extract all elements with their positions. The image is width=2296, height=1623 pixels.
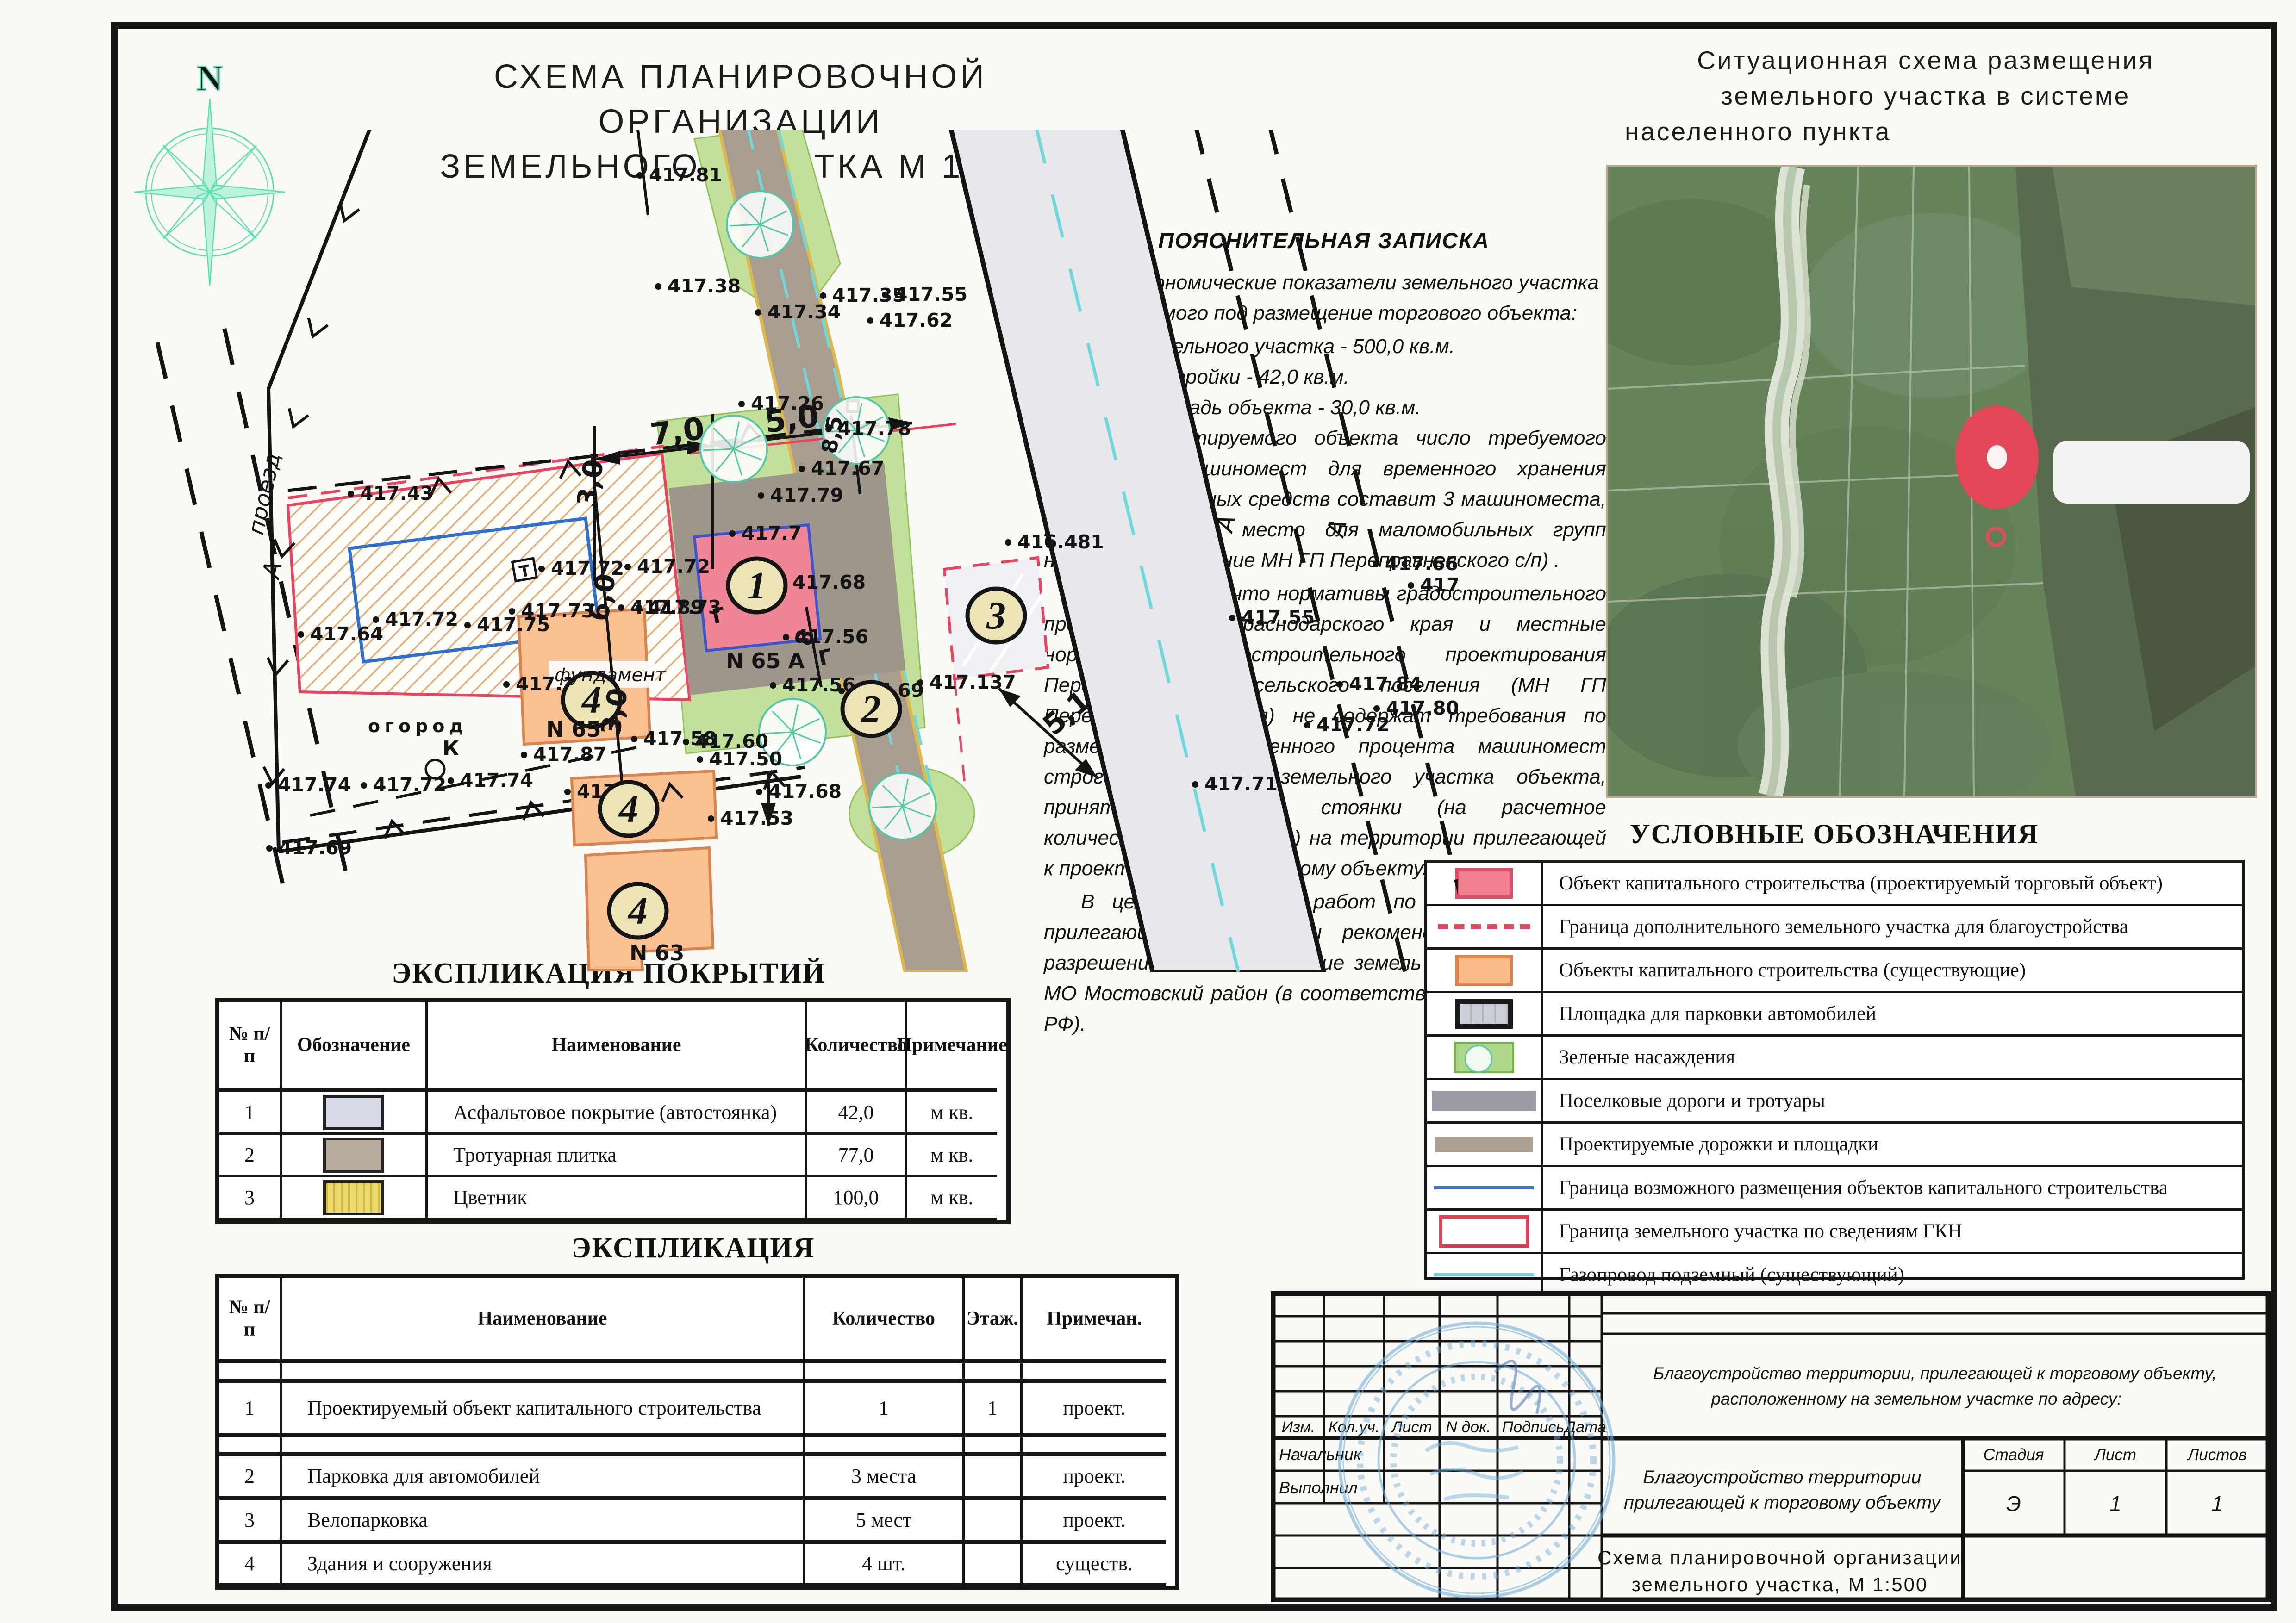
survey-tick (266, 658, 288, 676)
road-label: проезд (243, 450, 286, 537)
explication-spacer (965, 1437, 1023, 1456)
coverings-header: Наименование (428, 1002, 807, 1092)
sheet-name-line2: земельного участка, М 1:500 (1632, 1573, 1928, 1595)
elevation-label: 417.62 (880, 309, 953, 331)
elevation-dot (631, 736, 637, 742)
feature-number-2: 2 (842, 682, 900, 736)
elevation-label: 417.67 (811, 457, 884, 479)
compass-north-label: N (197, 58, 223, 98)
flower-swatch (323, 1180, 384, 1215)
coverings-row-note: м кв. (907, 1135, 997, 1177)
explication-spacer (1023, 1363, 1166, 1383)
legend-item-label: Объекты капитального строительства (суще… (1543, 959, 2026, 982)
legend: Объект капитального строительства (проек… (1424, 860, 2245, 1280)
explication-row-qty: 1 (805, 1383, 965, 1437)
feature-number-4: 4 (600, 782, 657, 836)
explication-header: Наименование (282, 1278, 805, 1363)
legend-item: Газопровод подземный (существующий) (1427, 1254, 2242, 1295)
elevation-label: 416.481 (1017, 531, 1104, 553)
elevation-label: 417.34 (767, 301, 841, 323)
elevation-label: 417.55 (1242, 606, 1315, 628)
legend-item-label: Проектируемые дорожки и площадки (1543, 1133, 1878, 1156)
elevation-dot (564, 789, 571, 795)
legend-item: Проектируемые дорожки и площадки (1427, 1124, 2242, 1167)
label: Э (2006, 1492, 2021, 1516)
red-border-rect-icon (1427, 1211, 1543, 1252)
elevation-label: 417.50 (709, 748, 782, 770)
elevation-label: 417.68 (768, 780, 842, 802)
elevation-label: 417.43 (360, 482, 433, 504)
feature-number-4: 4 (609, 884, 667, 938)
tree-icon (869, 773, 936, 839)
explication-spacer (219, 1437, 282, 1456)
elevation-dot (521, 752, 527, 758)
elevation-dot (756, 789, 762, 795)
road-letter: А (1322, 517, 1353, 540)
elevation-dot (1005, 539, 1011, 546)
elevation-dot (738, 401, 745, 407)
elevation-dot (655, 283, 661, 290)
explication-row-note: существ. (1023, 1544, 1166, 1586)
explication-row-note: проект. (1023, 1456, 1166, 1500)
legend-item: Объект капитального строительства (проек… (1427, 863, 2242, 906)
well-letter: К (443, 737, 459, 760)
explication-header: Количество (805, 1278, 965, 1363)
elevation-label: 417.69 (279, 837, 352, 859)
explication-row-qty: 5 мест (805, 1500, 965, 1544)
elevation-label: 417.55 (894, 283, 967, 305)
legend-item: Поселковые дороги и тротуары (1427, 1080, 2242, 1124)
elevation-dot (708, 815, 714, 822)
elevation-dot (464, 622, 471, 628)
legend-item-label: Граница земельного участка по сведениям … (1543, 1220, 1962, 1243)
elevation-dot (298, 631, 304, 638)
village-road (949, 130, 1324, 972)
building-label: N 65 (546, 717, 601, 742)
explication-row-name: Парковка для автомобилей (282, 1456, 805, 1500)
taupe-band-icon (1427, 1124, 1543, 1165)
legend-title: УСЛОВНЫЕ ОБОЗНАЧЕНИЯ (1423, 818, 2245, 850)
coverings-row-qty: 42,0 (807, 1092, 907, 1135)
feature-number-1: 1 (728, 559, 786, 612)
elevation-label: 417.72 (637, 555, 710, 578)
elevation-label: 417.137 (930, 671, 1016, 693)
label: Стадия (1983, 1446, 2044, 1464)
label: 3 (986, 594, 1006, 637)
coverings-row-qty: 100,0 (807, 1177, 907, 1220)
blue-line-icon (1427, 1167, 1543, 1208)
situational-title-line: населенного пункта (1592, 114, 2259, 149)
explication-row-num: 2 (219, 1456, 282, 1500)
elevation-dot (1373, 705, 1380, 712)
legend-item-label: Зеленые насаждения (1543, 1046, 1735, 1069)
legend-item-label: Газопровод подземный (существующий) (1543, 1263, 1904, 1286)
elevation-label: 417.71 (1204, 773, 1278, 795)
elevation-dot (265, 782, 272, 789)
coverings-row-num: 1 (219, 1092, 282, 1135)
elevation-dot (618, 604, 624, 611)
explication-header: Примечан. (1023, 1278, 1166, 1363)
elevation-dot (538, 566, 545, 572)
map-label-box (2053, 441, 2250, 504)
elevation-dot (448, 777, 454, 784)
survey-tick (303, 318, 328, 340)
elevation-dot (348, 491, 354, 497)
elevation-dot (770, 682, 776, 689)
site-plan: 417.81417.38417.34417.35417.55417.62417.… (116, 130, 1458, 972)
explication-spacer (965, 1363, 1023, 1383)
elevation-dot (697, 756, 703, 763)
coverings-row-swatch (282, 1135, 428, 1177)
elevation-label: 417.87 (533, 743, 606, 765)
explication-row-floor (965, 1544, 1023, 1586)
tree-icon (700, 416, 767, 482)
coverings-row-name: Цветник (428, 1177, 807, 1220)
elevation-dot (509, 608, 515, 615)
coverings-row-note: м кв. (907, 1092, 997, 1135)
label: 1 (2211, 1492, 2223, 1516)
explication-spacer (805, 1363, 965, 1383)
label: 4 (627, 889, 648, 933)
round-stamp (1324, 1317, 1629, 1613)
cyan-line-icon (1427, 1254, 1543, 1295)
legend-item: Граница земельного участка по сведениям … (1427, 1211, 2242, 1254)
elevation-dot (373, 616, 379, 623)
elevation-label: 417.78 (838, 417, 911, 440)
explication-header: № п/п (219, 1278, 282, 1363)
situational-title: Ситуационная схема размещения земельного… (1592, 43, 2259, 149)
explication-spacer (282, 1437, 805, 1456)
explication-row-note: проект. (1023, 1500, 1166, 1544)
label: 1 (2109, 1492, 2121, 1516)
coverings-header: Количество (807, 1002, 907, 1092)
situational-title-line: Ситуационная схема размещения (1592, 43, 2259, 78)
legend-item: Граница дополнительного земельного участ… (1427, 906, 2242, 950)
elevation-label: 417.79 (770, 484, 843, 506)
legend-item-label: Граница дополнительного земельного участ… (1543, 915, 2128, 938)
elevation-dot (1336, 681, 1343, 688)
explication-row-note: проект. (1023, 1383, 1166, 1437)
elevation-label: 417.67 (1420, 574, 1458, 596)
label: 2 (861, 688, 881, 731)
elevation-dot (1229, 615, 1235, 621)
address-line2: расположенному на земельном участке по а… (1711, 1389, 2122, 1408)
elevation-label: 417.80 (1386, 697, 1458, 719)
elevation-dot (503, 681, 510, 688)
sheet-name-line1: Схема планировочной организации (1597, 1547, 1962, 1568)
explication-row-name: Велопарковка (282, 1500, 805, 1544)
explication-row-floor (965, 1456, 1023, 1500)
explication-row-qty: 4 шт. (805, 1544, 965, 1586)
elevation-dot (1192, 781, 1198, 788)
explication-row-floor: 1 (965, 1383, 1023, 1437)
legend-item-label: Площадка для парковки автомобилей (1543, 1002, 1876, 1025)
situational-title-line: земельного участка в системе (1592, 78, 2259, 114)
elevation-label: 417.38 (668, 275, 741, 297)
stage-cells: СтадияЛистЛистовЭ11 (1983, 1446, 2246, 1516)
coverings-row-swatch (282, 1177, 428, 1220)
elevation-label: 417.74 (278, 774, 351, 796)
explication-row-num: 4 (219, 1544, 282, 1586)
elevation-label: 417.72 (1316, 714, 1390, 736)
label: Лист (2094, 1446, 2136, 1464)
coverings-row-qty: 77,0 (807, 1135, 907, 1177)
explication-row-num: 3 (219, 1500, 282, 1544)
elevation-label: 417.72 (385, 608, 458, 630)
drawing-sheet: N СХЕМА ПЛАНИРОВОЧНОЙ ОРГАНИЗАЦИИ ЗЕМЕЛЬ… (0, 0, 2296, 1623)
project-line1: Благоустройство территории (1643, 1467, 1921, 1487)
foundation-label: фундамент (555, 665, 667, 686)
garden-label: огород (368, 716, 468, 736)
explication-row-floor (965, 1500, 1023, 1544)
elevation-dot (729, 530, 736, 537)
elevation-dot (1304, 722, 1310, 728)
coverings-row-num: 3 (219, 1177, 282, 1220)
explication-table: № п/пНаименованиеКоличествоЭтаж.Примечан… (215, 1274, 1179, 1590)
building-label: N 65 А (726, 648, 805, 673)
elevation-dot (636, 604, 642, 611)
coverings-table: № п/пОбозначениеНаименованиеКоличествоПр… (215, 998, 1011, 1224)
elevation-label: 417.72 (373, 774, 446, 796)
legend-item: Граница возможного размещения объектов к… (1427, 1167, 2242, 1211)
road-letter: А (257, 559, 288, 582)
explication-spacer (219, 1363, 282, 1383)
explication-row-qty: 3 места (805, 1456, 965, 1500)
elevation-label: 417.84 (1349, 673, 1422, 695)
elevation-label: 417.53 (720, 807, 793, 829)
elevation-dot (1373, 561, 1379, 567)
parking-rect-icon (1427, 993, 1543, 1034)
dimension-label: 7,0 (649, 410, 706, 453)
elevation-label: 417.64 (310, 623, 383, 645)
legend-item-label: Объект капитального строительства (проек… (1543, 872, 2163, 895)
feature-number-3: 3 (967, 589, 1025, 642)
elevation-label: 417.68 (792, 571, 866, 593)
gray-band-icon (1427, 1080, 1543, 1121)
legend-rows: Объект капитального строительства (проек… (1427, 863, 2242, 1295)
address-line1: Благоустройство территории, прилегающей … (1653, 1364, 2217, 1383)
green-tree-rect-icon (1427, 1037, 1543, 1078)
dimension-label: 5,0 (763, 398, 821, 440)
elevation-dot (867, 317, 873, 324)
label: Листов (2187, 1446, 2246, 1464)
elevation-dot (636, 172, 643, 179)
coverings-header: Примечание (907, 1002, 997, 1092)
elevation-dot (758, 492, 764, 499)
elevation-dot (266, 845, 273, 852)
asphalt-swatch (323, 1095, 384, 1130)
elevation-label: 417.81 (649, 164, 722, 186)
legend-item: Зеленые насаждения (1427, 1037, 2242, 1080)
explication-spacer (282, 1363, 805, 1383)
explication-spacer (1023, 1437, 1166, 1456)
elevation-dot (799, 466, 805, 472)
survey-tick (284, 408, 308, 430)
coverings-row-name: Асфальтовое покрытие (автостоянка) (428, 1092, 807, 1135)
building-label: N 63 (630, 940, 685, 965)
elevation-label: 417.56 (782, 674, 855, 696)
coverings-header: № п/п (219, 1002, 282, 1092)
elevation-label: 417.66 (1385, 553, 1458, 575)
explication-table-title: ЭКСПЛИКАЦИЯ (215, 1232, 1171, 1265)
coverings-row-note: м кв. (907, 1177, 997, 1220)
elevation-label: 417.74 (460, 769, 533, 791)
label: Изм. (1282, 1418, 1316, 1436)
coverings-row-name: Тротуарная плитка (428, 1135, 807, 1177)
coverings-row-swatch (282, 1092, 428, 1135)
elevation-dot (1408, 582, 1414, 589)
elevation-dot (683, 739, 689, 745)
elevation-dot (783, 634, 789, 640)
elevation-dot (882, 292, 888, 298)
explication-row-num: 1 (219, 1383, 282, 1437)
legend-item-label: Граница возможного размещения объектов к… (1543, 1176, 2168, 1199)
satellite-map-image (1608, 167, 2255, 796)
explication-row-name: Проектируемый объект капитального строит… (282, 1383, 805, 1437)
legend-item-label: Поселковые дороги и тротуары (1543, 1089, 1825, 1112)
explication-spacer (805, 1437, 965, 1456)
project-line2: прилегающей к торговому объекту (1624, 1492, 1942, 1513)
elevation-label: 417.7 (742, 522, 802, 544)
tile-swatch (323, 1138, 384, 1173)
satellite-map (1606, 165, 2257, 798)
elevation-dot (755, 309, 761, 316)
legend-item: Площадка для парковки автомобилей (1427, 993, 2242, 1037)
label: 4 (618, 788, 638, 831)
legend-item: Объекты капитального строительства (суще… (1427, 950, 2242, 993)
coverings-header: Обозначение (282, 1002, 428, 1092)
elevation-dot (820, 292, 826, 299)
coverings-row-num: 2 (219, 1135, 282, 1177)
tree-icon (727, 191, 793, 258)
elevation-dot (624, 564, 631, 570)
label: 1 (747, 564, 767, 607)
elevation-dot (361, 782, 367, 789)
explication-header: Этаж. (965, 1278, 1023, 1363)
explication-row-name: Здания и сооружения (282, 1544, 805, 1586)
